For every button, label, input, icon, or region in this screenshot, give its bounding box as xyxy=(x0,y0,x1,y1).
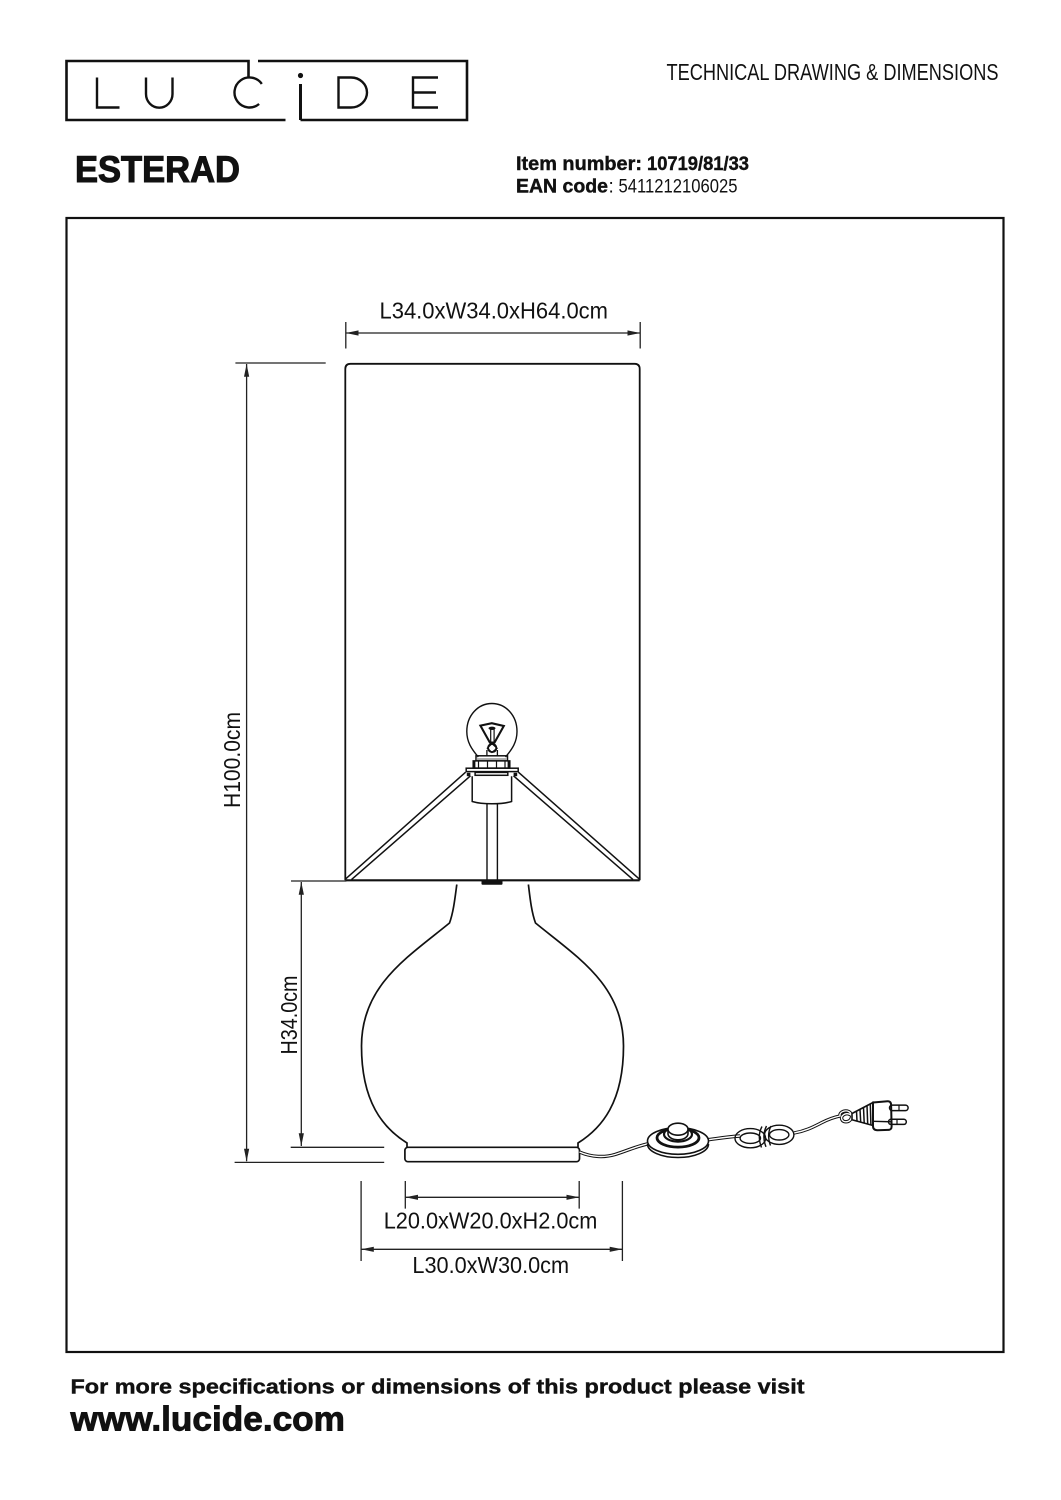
svg-text:H100.0cm: H100.0cm xyxy=(219,712,245,808)
svg-text:10719/81/33: 10719/81/33 xyxy=(647,154,749,175)
svg-text:TECHNICAL DRAWING & DIMENSIONS: TECHNICAL DRAWING & DIMENSIONS xyxy=(667,59,999,85)
svg-text:EAN code: EAN code xyxy=(516,177,608,198)
svg-text:ESTERAD: ESTERAD xyxy=(75,149,240,190)
svg-text::: : xyxy=(609,177,614,198)
svg-text:Item number:: Item number: xyxy=(516,154,642,175)
svg-text:www.lucide.com: www.lucide.com xyxy=(69,1400,345,1438)
svg-text:L30.0xW30.0cm: L30.0xW30.0cm xyxy=(412,1252,569,1278)
svg-text:L20.0xW20.0xH2.0cm: L20.0xW20.0xH2.0cm xyxy=(384,1208,598,1234)
svg-text:H34.0cm: H34.0cm xyxy=(276,976,302,1055)
svg-text:For more specifications or dim: For more specifications or dimensions of… xyxy=(71,1377,805,1399)
svg-text:L34.0xW34.0xH64.0cm: L34.0xW34.0xH64.0cm xyxy=(380,298,609,324)
svg-text:5411212106025: 5411212106025 xyxy=(619,177,738,198)
